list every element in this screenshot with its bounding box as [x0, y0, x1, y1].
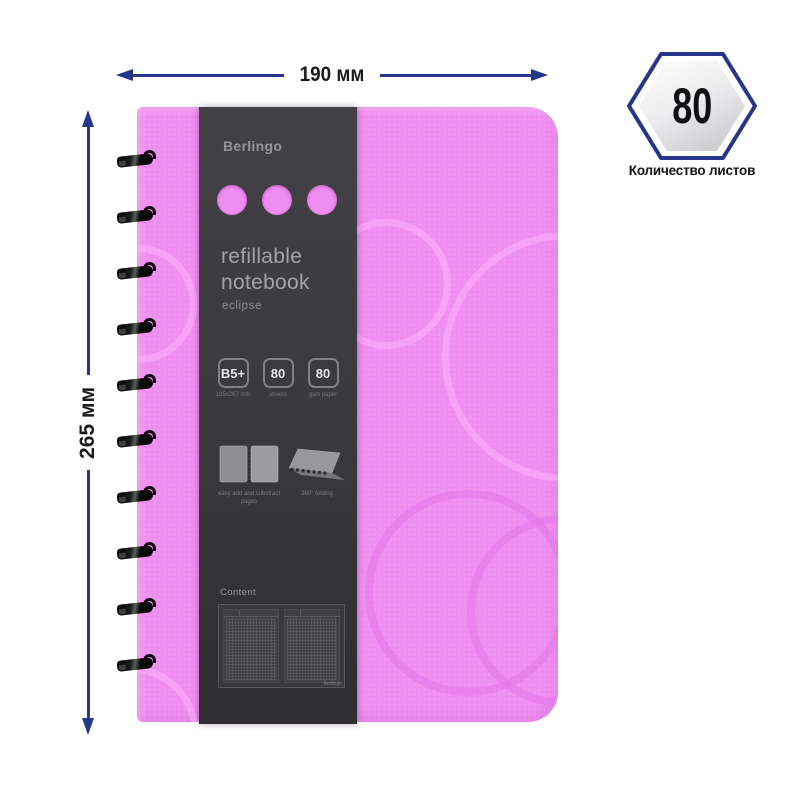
binder-ring	[117, 434, 156, 447]
spec-sheets: 80 sheets	[261, 358, 295, 398]
360-folding-icon	[288, 443, 346, 485]
binder-ring	[117, 210, 156, 223]
page-grid	[226, 619, 276, 680]
hexagon-icon: 80	[626, 50, 758, 162]
cover-circle-decoration	[137, 665, 199, 722]
sleeve-hole	[217, 185, 247, 215]
binder-ring	[117, 378, 156, 391]
spec-paper-value: 80	[308, 358, 339, 388]
spec-format-value: B5+	[218, 358, 249, 388]
content-preview-box: Berlingo	[218, 604, 345, 688]
dimension-line	[87, 470, 90, 718]
content-page-preview	[284, 609, 340, 683]
binder-ring	[117, 602, 156, 615]
arrowhead-down-icon	[82, 718, 94, 735]
sheet-count-badge: 80	[626, 50, 758, 162]
binder-ring	[117, 546, 156, 559]
spec-format: B5+ 185x267 mm	[216, 358, 250, 398]
content-page-preview	[223, 609, 279, 683]
page-grid	[287, 619, 337, 680]
sheet-count-caption: Количество листов	[602, 163, 782, 178]
spec-paper: 80 gsm paper	[306, 358, 340, 398]
arrowhead-left-icon	[116, 69, 133, 81]
spec-sheets-caption: sheets	[269, 392, 287, 398]
feature-folding-caption: 360° folding	[301, 490, 333, 498]
height-dimension: 265 мм	[74, 110, 102, 735]
sheet-count-value: 80	[672, 79, 712, 134]
page-header-row	[285, 610, 339, 617]
binder-ring	[117, 658, 156, 671]
sleeve-hole	[262, 185, 292, 215]
binder-ring	[117, 154, 156, 167]
feature-icons: easy add and substract pages 360° foldin…	[212, 443, 346, 506]
feature-refill: easy add and substract pages	[212, 443, 286, 506]
height-dimension-label: 265 мм	[76, 375, 100, 471]
content-brand-small: Berlingo	[324, 681, 342, 687]
spec-paper-caption: gsm paper	[309, 392, 337, 398]
open-notebook-icon	[219, 443, 279, 485]
arrowhead-right-icon	[531, 69, 548, 81]
product-title: refillable notebook	[221, 244, 310, 296]
product-title-line1: refillable	[221, 244, 310, 270]
cover-circle-decoration	[442, 232, 558, 482]
spec-sheets-value: 80	[263, 358, 294, 388]
binder-ring	[117, 322, 156, 335]
binder-ring	[117, 266, 156, 279]
feature-refill-caption: easy add and substract pages	[212, 490, 286, 506]
arrowhead-up-icon	[82, 110, 94, 127]
spec-format-caption: 185x267 mm	[216, 392, 251, 398]
notebook-sleeve: Berlingo refillable notebook eclipse B5+…	[199, 107, 357, 724]
series-name: eclipse	[222, 300, 262, 312]
feature-folding: 360° folding	[288, 443, 346, 506]
dimension-line	[380, 74, 531, 77]
width-dimension-label: 190 мм	[289, 63, 375, 87]
spec-badges: B5+ 185x267 mm 80 sheets 80 gsm paper	[216, 358, 340, 398]
dimension-line	[133, 74, 284, 77]
notebook-product: Berlingo refillable notebook eclipse B5+…	[137, 107, 558, 722]
brand-logo: Berlingo	[223, 138, 282, 154]
binder-ring	[117, 490, 156, 503]
content-section-label: Content	[220, 587, 256, 598]
dimension-line	[87, 127, 90, 375]
product-title-line2: notebook	[221, 270, 310, 296]
width-dimension: 190 мм	[116, 63, 548, 87]
sleeve-hole	[307, 185, 337, 215]
page-header-row	[224, 610, 278, 617]
